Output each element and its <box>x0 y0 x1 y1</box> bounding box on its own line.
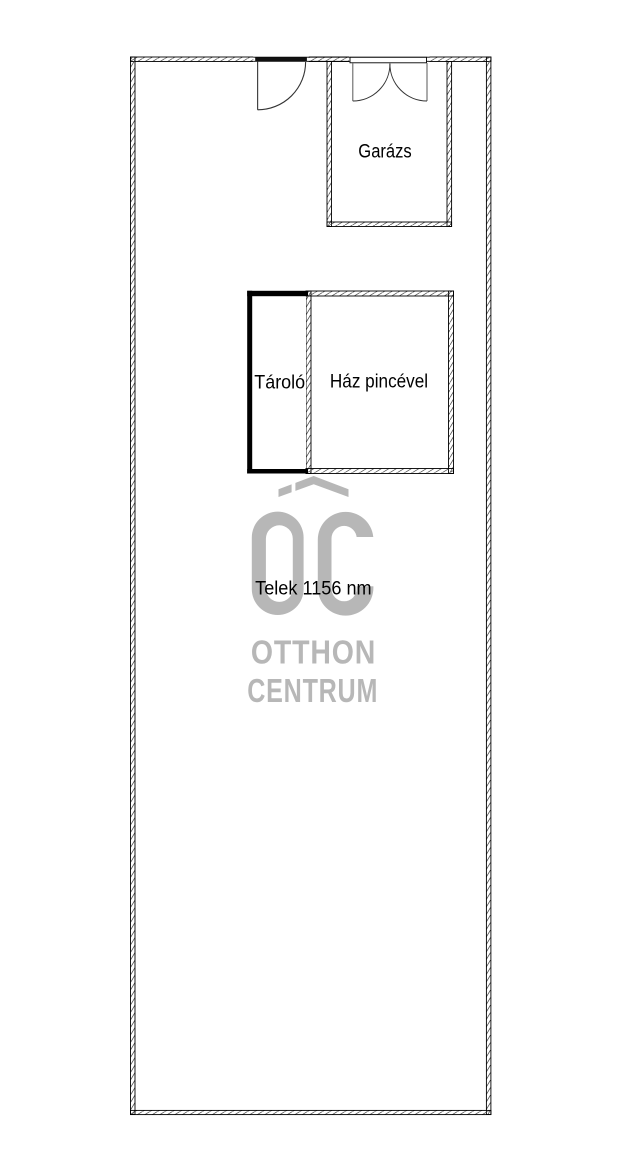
svg-text:Ház pincével: Ház pincével <box>330 369 428 391</box>
svg-text:OTTHON: OTTHON <box>251 633 376 671</box>
svg-text:Garázs: Garázs <box>358 140 411 162</box>
svg-text:Telek 1156 nm: Telek 1156 nm <box>255 577 372 599</box>
svg-text:CENTRUM: CENTRUM <box>247 672 378 709</box>
svg-text:Tároló: Tároló <box>254 371 305 393</box>
